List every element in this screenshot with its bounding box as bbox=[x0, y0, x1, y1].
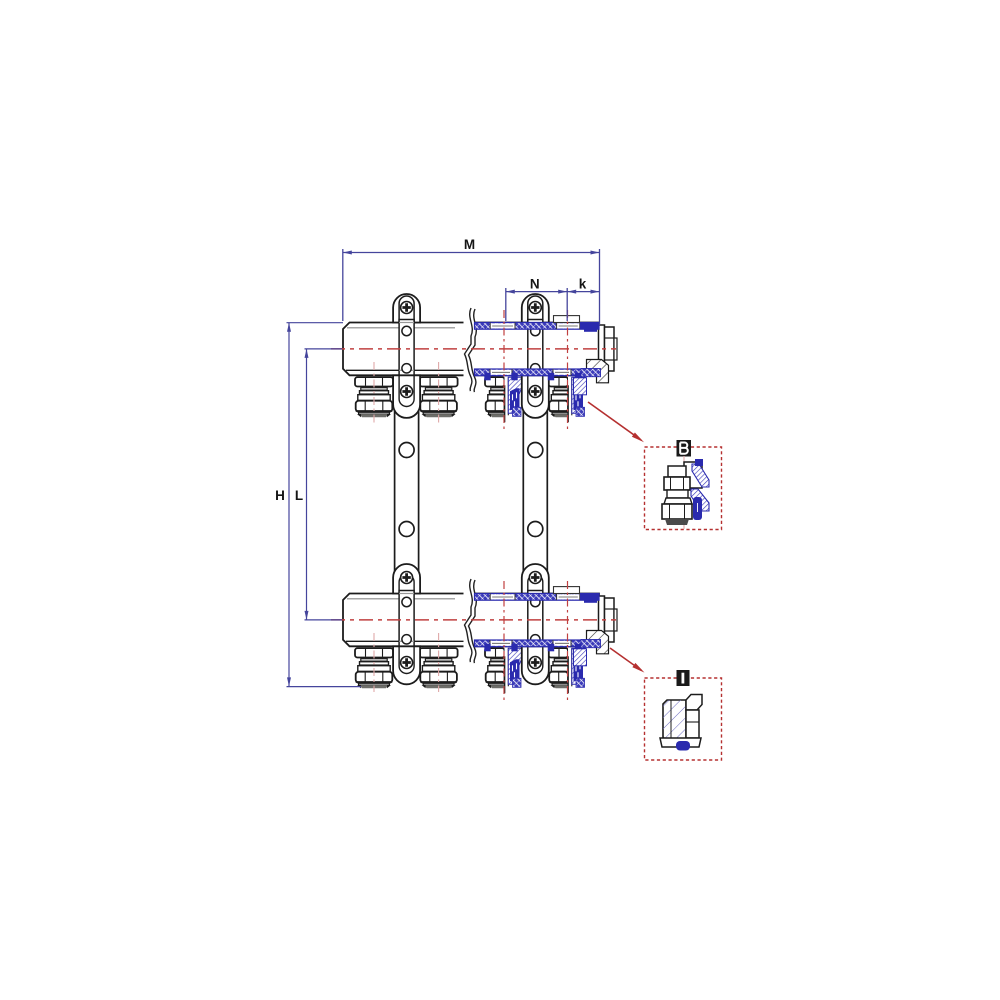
svg-text:H: H bbox=[275, 488, 285, 503]
svg-text:k: k bbox=[579, 277, 587, 292]
svg-text:N: N bbox=[530, 277, 540, 292]
svg-text:L: L bbox=[295, 488, 303, 503]
svg-text:M: M bbox=[464, 237, 475, 252]
